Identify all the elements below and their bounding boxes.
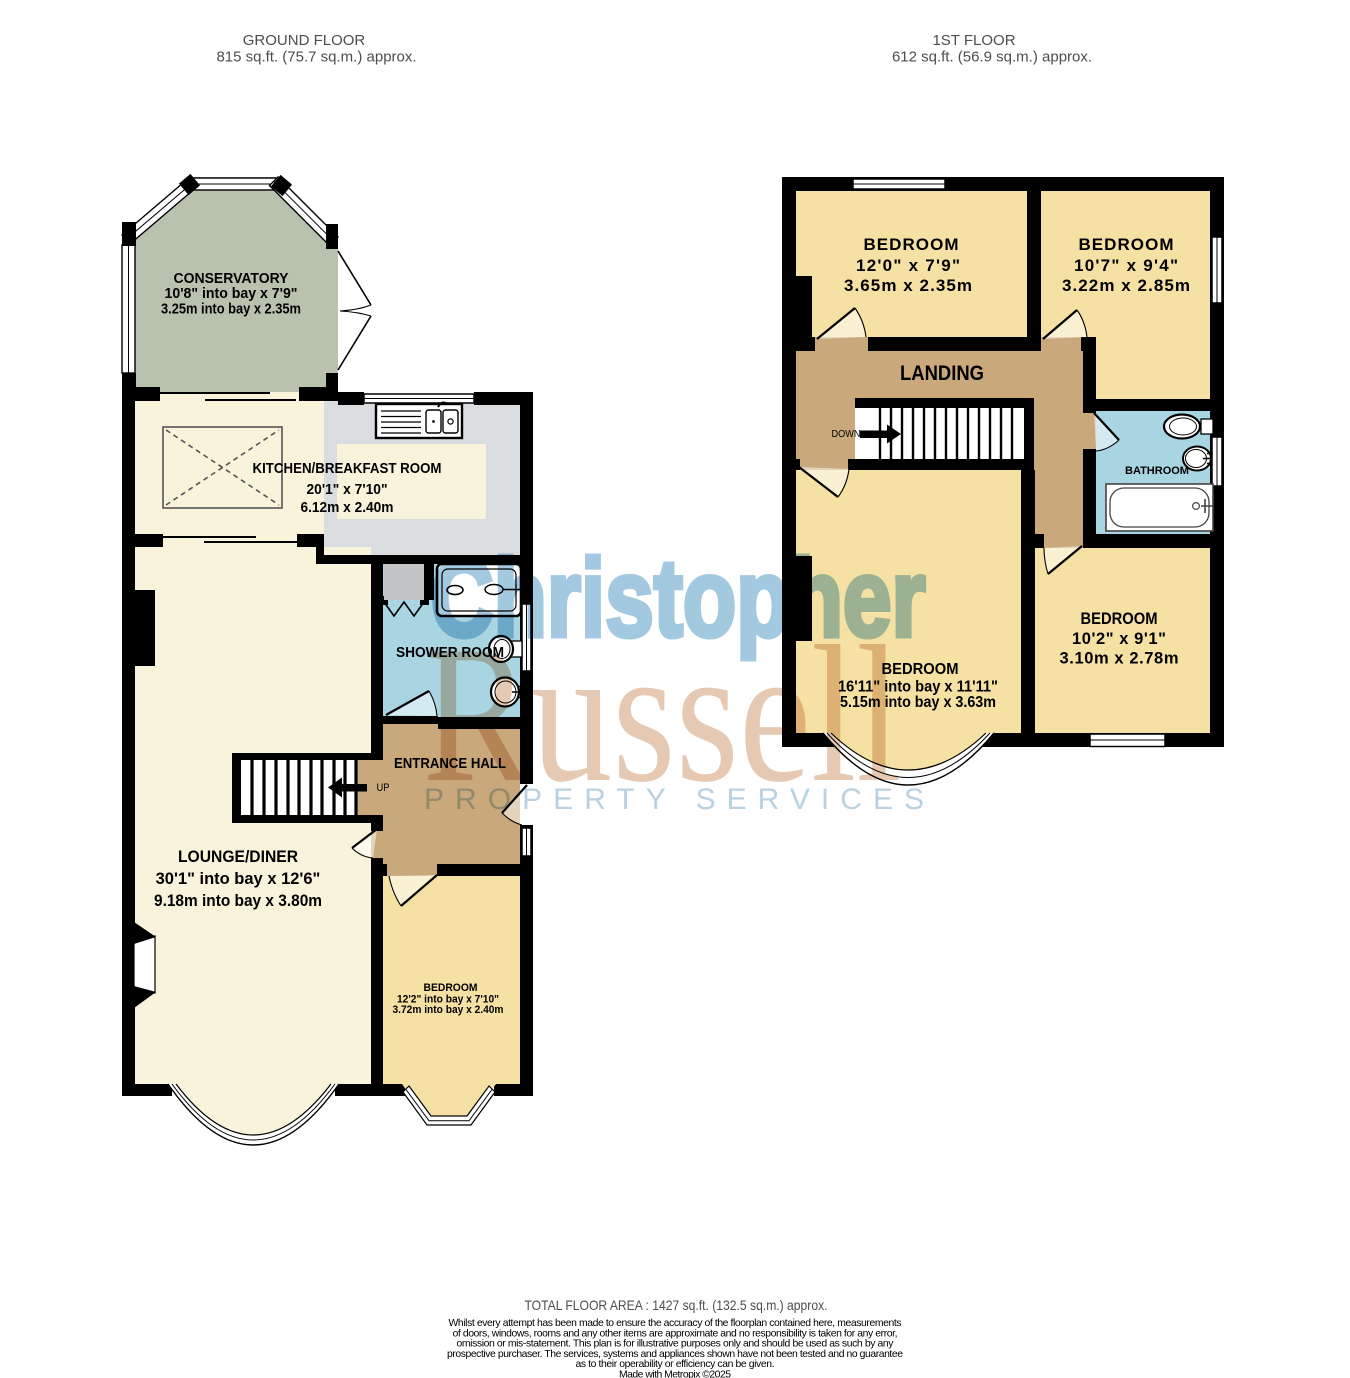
- svg-text:10'7" x 9'4": 10'7" x 9'4": [1074, 256, 1178, 275]
- svg-text:BATHROOM: BATHROOM: [1125, 465, 1189, 477]
- svg-text:3.65m x 2.35m: 3.65m x 2.35m: [844, 276, 972, 295]
- svg-text:GROUND FLOOR: GROUND FLOOR: [243, 32, 366, 49]
- svg-text:10'8" into bay x 7'9": 10'8" into bay x 7'9": [165, 285, 298, 302]
- svg-text:12'0" x 7'9": 12'0" x 7'9": [856, 256, 960, 275]
- svg-text:3.72m into bay x 2.40m: 3.72m into bay x 2.40m: [393, 1004, 504, 1016]
- svg-text:BEDROOM: BEDROOM: [424, 982, 478, 994]
- svg-text:20'1" x 7'10": 20'1" x 7'10": [307, 481, 388, 498]
- svg-text:10'2" x 9'1": 10'2" x 9'1": [1072, 630, 1166, 648]
- svg-text:LANDING: LANDING: [900, 362, 984, 385]
- svg-text:BEDROOM: BEDROOM: [1079, 235, 1174, 254]
- svg-text:Made with Metropix ©2025: Made with Metropix ©2025: [619, 1370, 731, 1378]
- svg-text:LOUNGE/DINER: LOUNGE/DINER: [178, 848, 298, 866]
- svg-text:815 sq.ft. (75.7 sq.m.) approx: 815 sq.ft. (75.7 sq.m.) approx.: [216, 49, 416, 66]
- svg-text:3.10m x 2.78m: 3.10m x 2.78m: [1060, 650, 1179, 668]
- svg-text:BEDROOM: BEDROOM: [864, 235, 959, 254]
- svg-text:3.22m x 2.85m: 3.22m x 2.85m: [1062, 276, 1190, 295]
- svg-text:3.25m into bay x 2.35m: 3.25m into bay x 2.35m: [161, 301, 301, 318]
- svg-text:KITCHEN/BREAKFAST ROOM: KITCHEN/BREAKFAST ROOM: [253, 460, 442, 477]
- svg-text:BEDROOM: BEDROOM: [1081, 610, 1158, 628]
- svg-text:9.18m into bay x 3.80m: 9.18m into bay x 3.80m: [154, 892, 322, 910]
- svg-text:30'1" into bay x 12'6": 30'1" into bay x 12'6": [156, 870, 321, 888]
- svg-text:6.12m x 2.40m: 6.12m x 2.40m: [301, 499, 394, 516]
- svg-text:1ST FLOOR: 1ST FLOOR: [932, 32, 1015, 49]
- svg-text:UP: UP: [377, 782, 390, 794]
- svg-text:612 sq.ft. (56.9 sq.m.) approx: 612 sq.ft. (56.9 sq.m.) approx.: [892, 49, 1092, 66]
- svg-text:DOWN: DOWN: [832, 428, 861, 440]
- svg-text:TOTAL FLOOR AREA : 1427 sq.ft.: TOTAL FLOOR AREA : 1427 sq.ft. (132.5 sq…: [525, 1297, 828, 1313]
